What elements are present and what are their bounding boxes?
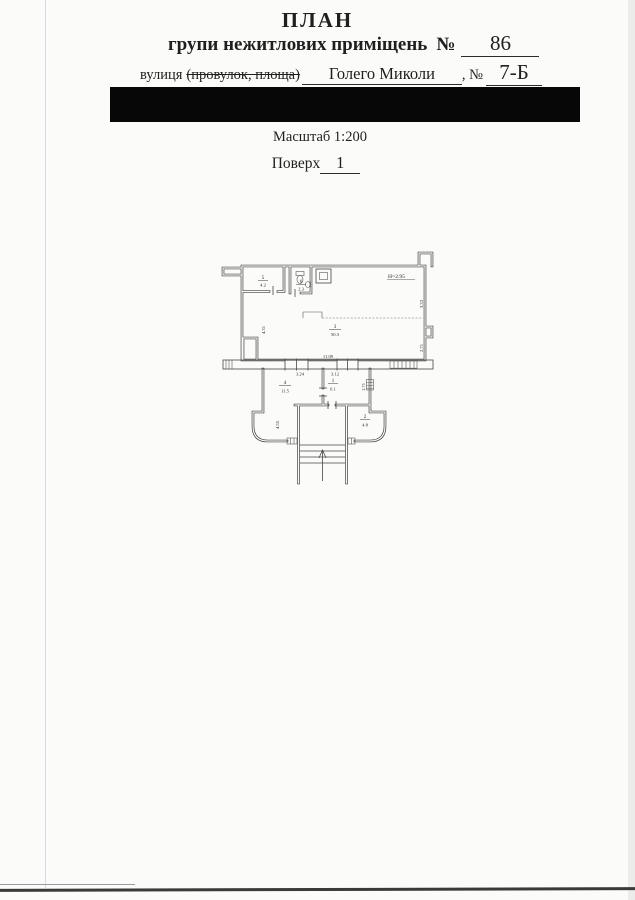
street-value: Голего Миколи bbox=[302, 64, 462, 85]
dim-bottom-left: 3.24 bbox=[296, 372, 305, 377]
dim-bottom-total: 11.09 bbox=[323, 354, 334, 359]
page-title: ПЛАН bbox=[0, 8, 635, 33]
svg-text:50.3: 50.3 bbox=[331, 332, 340, 337]
ventilation-shaft bbox=[316, 269, 331, 283]
street-struck-label: (провулок, площа) bbox=[186, 67, 300, 83]
premises-no-label: № bbox=[436, 34, 455, 55]
svg-text:4.2: 4.2 bbox=[260, 283, 266, 288]
dim-right-top: 3.33 bbox=[419, 299, 424, 308]
exterior-bottom-wall bbox=[223, 359, 433, 371]
floor-value: 1 bbox=[320, 153, 360, 174]
svg-text:11.5: 11.5 bbox=[281, 389, 290, 394]
window-hatch-left bbox=[226, 360, 232, 369]
scale-label: Масштаб 1:200 bbox=[0, 129, 635, 146]
dim-left: 4.31 bbox=[261, 325, 266, 334]
floor-plan-drawing: Н=2.95 11.09 3.24 3.12 3.33 2.71 4.31 1.… bbox=[215, 248, 445, 498]
building-no-value: 7-Б bbox=[486, 60, 542, 86]
floor-plan: Н=2.95 11.09 3.24 3.12 3.33 2.71 4.31 1.… bbox=[215, 248, 445, 498]
svg-text:4.8: 4.8 bbox=[362, 423, 368, 428]
room-label-1: 1 6.1 bbox=[328, 379, 338, 392]
floor-line: Поверх1 bbox=[0, 153, 632, 174]
room-label-2: 2 4.8 bbox=[360, 415, 370, 428]
street-label: вулиця bbox=[140, 67, 182, 83]
building-no-label: , № bbox=[462, 67, 483, 83]
hall-partition-line bbox=[303, 312, 423, 318]
premises-line: групи нежитлових приміщень№86 bbox=[168, 31, 539, 57]
dim-bottom-mid: 3.12 bbox=[331, 372, 340, 377]
stairs-direction-arrow bbox=[319, 450, 326, 481]
dim-vestibule-right: 1.71 bbox=[361, 382, 366, 391]
room-label-4: 4 11.5 bbox=[279, 381, 291, 394]
premises-subtitle: групи нежитлових приміщень bbox=[168, 34, 427, 55]
dim-vestibule-left: 4.55 bbox=[275, 420, 280, 429]
premises-no-value: 86 bbox=[461, 31, 539, 57]
room-label-5: 5 4.2 bbox=[258, 276, 268, 288]
scan-bottom-edge-faint bbox=[0, 884, 135, 885]
svg-text:6.1: 6.1 bbox=[330, 387, 336, 392]
svg-text:2.3: 2.3 bbox=[298, 287, 304, 292]
dim-right-bottom: 2.71 bbox=[419, 343, 424, 352]
redaction-bar bbox=[110, 87, 580, 122]
street-line: вулиця(провулок, площа)Голего Миколи, №7… bbox=[140, 60, 542, 86]
floor-label: Поверх bbox=[272, 155, 321, 172]
room-label-3: 3 50.3 bbox=[329, 325, 341, 337]
height-label: Н=2.95 bbox=[388, 274, 405, 280]
window-hatch-right bbox=[390, 361, 417, 368]
scan-bottom-edge bbox=[0, 887, 635, 892]
